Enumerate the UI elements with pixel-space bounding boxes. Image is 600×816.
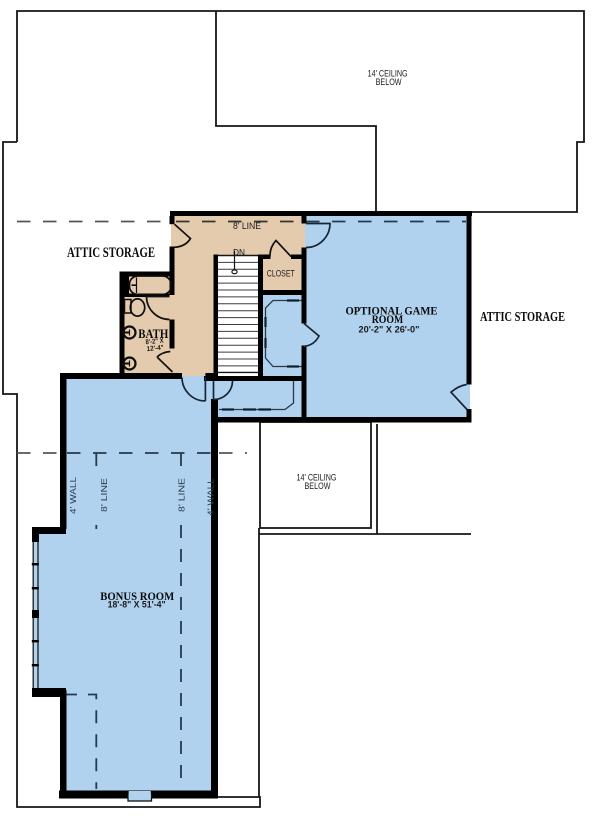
svg-text:DN: DN	[233, 248, 245, 258]
svg-text:BELOW: BELOW	[305, 481, 331, 491]
svg-text:12'-4": 12'-4"	[146, 345, 164, 353]
svg-text:BELOW: BELOW	[376, 77, 402, 87]
svg-text:4' WALL: 4' WALL	[68, 477, 78, 514]
svg-text:ATTIC STORAGE: ATTIC STORAGE	[67, 245, 155, 261]
svg-text:8' LINE: 8' LINE	[99, 478, 109, 512]
svg-text:18'-8" X 51'-4": 18'-8" X 51'-4"	[108, 600, 166, 610]
svg-text:20'-2" X 26'-0": 20'-2" X 26'-0"	[359, 324, 420, 334]
svg-text:8' LINE: 8' LINE	[233, 221, 261, 231]
svg-text:4' WALL: 4' WALL	[206, 478, 216, 516]
svg-text:CLOSET: CLOSET	[267, 269, 295, 279]
svg-text:ATTIC STORAGE: ATTIC STORAGE	[480, 310, 565, 325]
svg-text:8' LINE: 8' LINE	[176, 478, 186, 512]
